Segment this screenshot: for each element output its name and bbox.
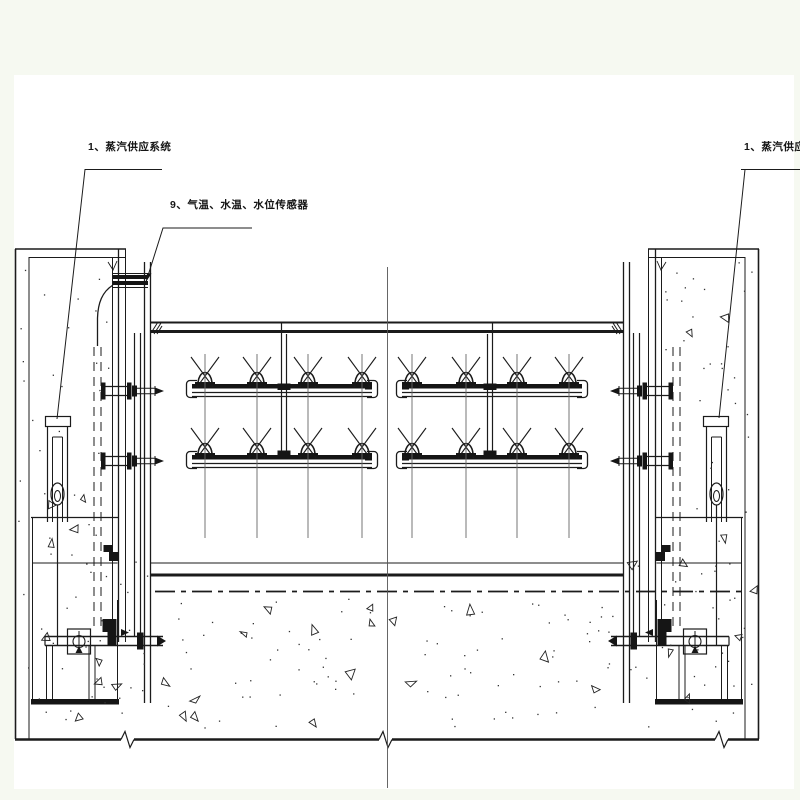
engineering-drawing-page: 1、蒸汽供应系统 9、气温、水温、水位传感器 1、蒸汽供应系统 [0,0,800,800]
technical-drawing [0,0,800,800]
left-pier-assembly [15,249,166,739]
right-pier-assembly [608,249,759,739]
callout-sensors: 9、气温、水温、水位传感器 [170,199,308,211]
callout-leaders [57,170,800,420]
foundation [15,563,759,748]
spray-pipe-rows [187,354,588,538]
header-pipe [150,323,624,459]
callout-steam-supply-right: 1、蒸汽供应系统 [744,141,800,153]
callout-steam-supply-left: 1、蒸汽供应系统 [88,141,171,153]
